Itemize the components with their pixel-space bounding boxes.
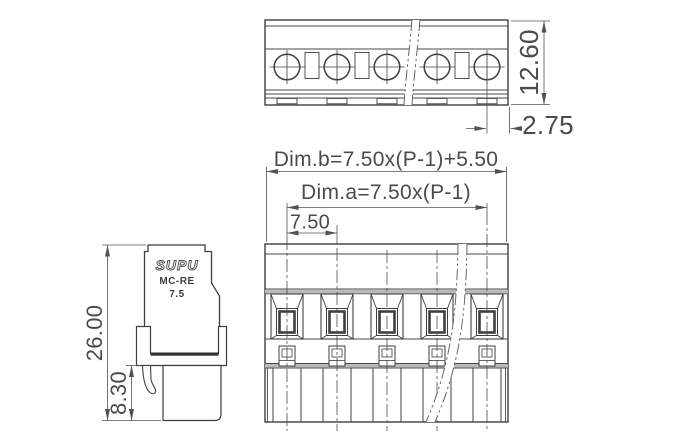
dim-a-formula-label: Dim.a=7.50x(P-1) [301,181,471,204]
dim-12-60-label: 12.60 [514,29,544,96]
dim-7-50-label: 7.50 [290,212,330,234]
dimension-pin-section: 8.30 [106,366,141,421]
drawing-svg: 12.60 2.75 Dim.b=7.50x(P-1)+5.50 Dim.a=7… [0,0,680,440]
pitch-label: 7.5 [169,289,184,300]
wire-slot [305,53,319,79]
wire-slot [355,53,369,79]
dimension-pitch: 7.50 [287,212,337,249]
dimension-top-height: 12.60 [511,21,550,105]
top-view [265,20,508,105]
front-view [265,212,508,431]
wire-slot [455,53,469,79]
pin-block [163,366,221,421]
brand-logo: SUPU [156,257,199,273]
dim-b-formula-label: Dim.b=7.50x(P-1)+5.50 [274,148,499,171]
dim-26-00-label: 26.00 [82,305,107,362]
series-label: MC-RE [159,276,194,287]
dim-8-30-label: 8.30 [106,371,131,415]
side-view: SUPU MC-RE 7.5 [137,245,227,421]
engineering-drawing: 12.60 2.75 Dim.b=7.50x(P-1)+5.50 Dim.a=7… [0,0,680,440]
latch-hook [143,366,156,394]
dim-2-75-label: 2.75 [522,110,574,140]
